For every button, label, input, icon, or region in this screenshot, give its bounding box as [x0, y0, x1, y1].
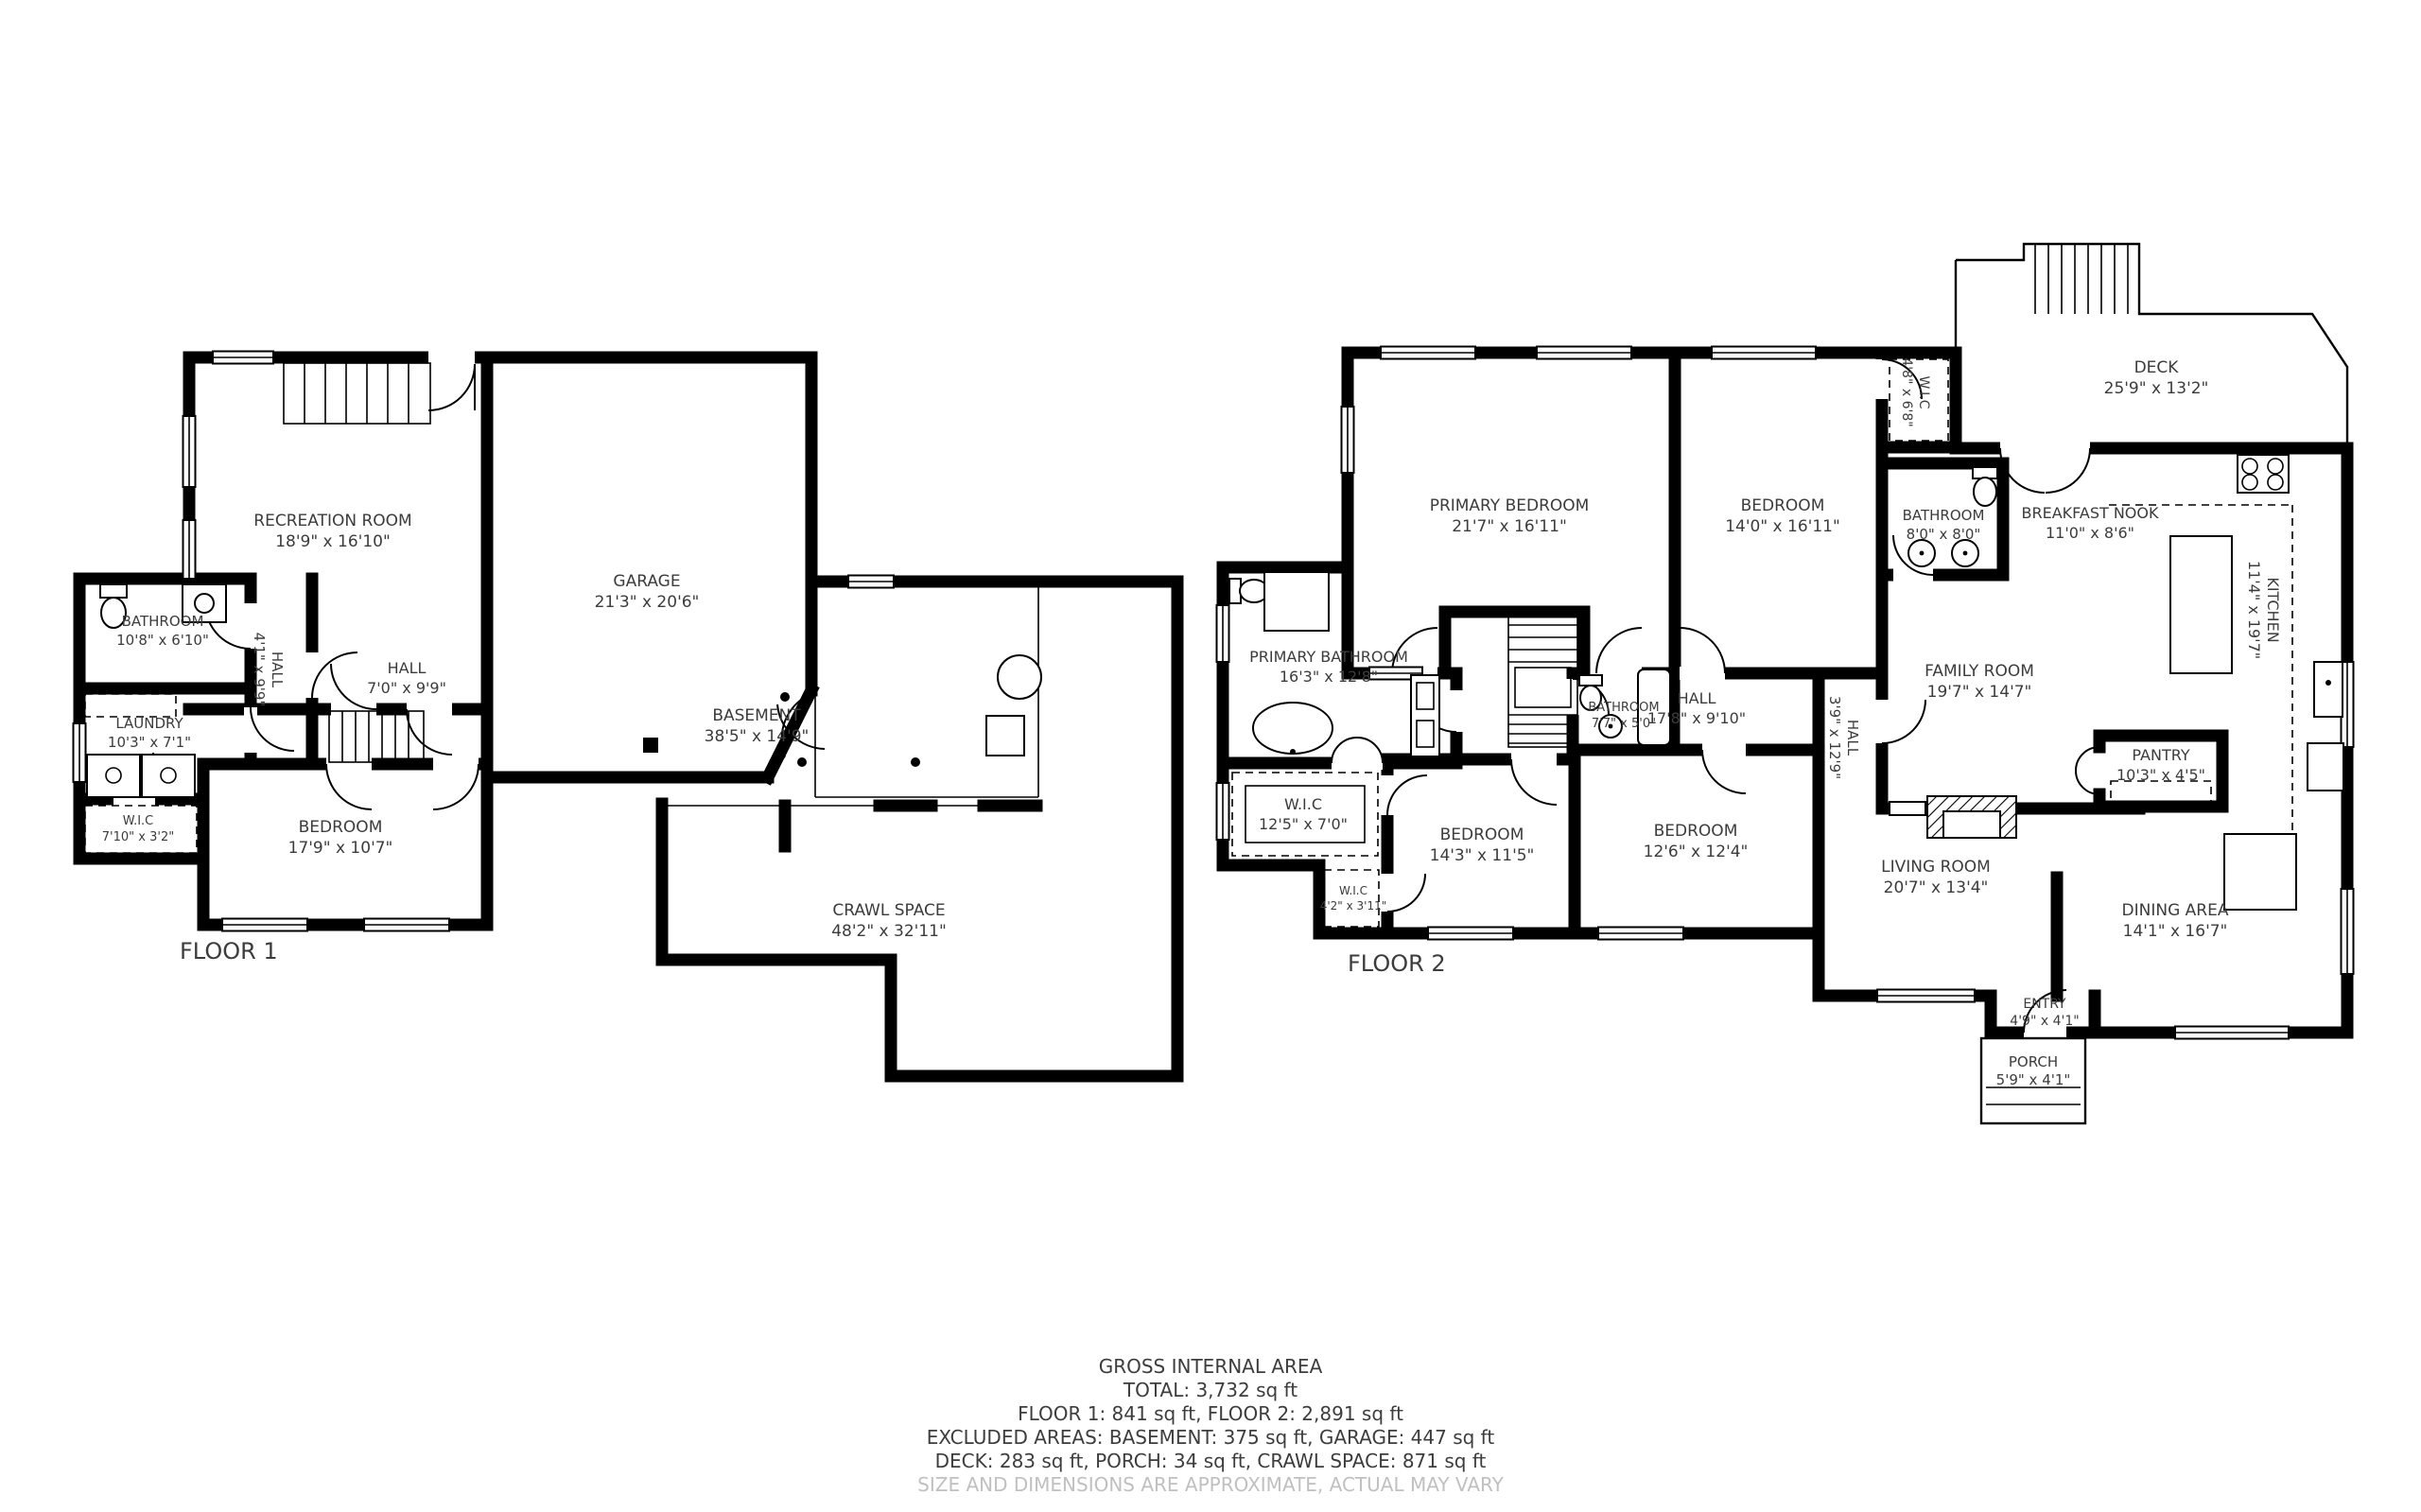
window [1877, 990, 1975, 1002]
window [1342, 407, 1354, 473]
window [1537, 347, 1631, 359]
summary-disclaimer: SIZE AND DIMENSIONS ARE APPROXIMATE, ACT… [917, 1473, 1504, 1496]
fireplace-window [1890, 802, 1925, 815]
garage-post [643, 738, 658, 753]
window [364, 919, 449, 931]
window [1217, 605, 1229, 662]
stove [2238, 455, 2289, 493]
window [222, 919, 307, 931]
floor1-title: FLOOR 1 [180, 938, 278, 965]
window [213, 352, 273, 364]
summary-title: GROSS INTERNAL AREA [1099, 1355, 1323, 1378]
window [183, 520, 196, 579]
window [2342, 889, 2354, 974]
floorplan-canvas: RECREATION ROOM18'9" x 16'10" GARAGE21'3… [0, 0, 2421, 1512]
window [848, 576, 894, 588]
vanity [1411, 675, 1439, 756]
summary-excluded: EXCLUDED AREAS: BASEMENT: 375 sq ft, GAR… [927, 1426, 1495, 1449]
kitchen-sink [2314, 662, 2343, 717]
window [1598, 928, 1683, 940]
background [0, 0, 2421, 1512]
summary-floors: FLOOR 1: 841 sq ft, FLOOR 2: 2,891 sq ft [1018, 1402, 1403, 1425]
window [1381, 347, 1475, 359]
summary-total: TOTAL: 3,732 sq ft [1123, 1379, 1298, 1401]
window [74, 723, 86, 782]
summary-excluded2: DECK: 283 sq ft, PORCH: 34 sq ft, CRAWL … [935, 1450, 1487, 1472]
floorplan-page: RECREATION ROOM18'9" x 16'10" GARAGE21'3… [0, 0, 2421, 1512]
window [2175, 1027, 2289, 1039]
water-heater [998, 655, 1041, 699]
window [183, 416, 196, 487]
washer-dryer [87, 755, 195, 797]
shower [1264, 572, 1329, 631]
toilet [1973, 467, 1997, 506]
floor2-title: FLOOR 2 [1348, 950, 1446, 977]
window [1217, 783, 1229, 840]
kitchen-cabinet [2224, 834, 2296, 910]
kitchen-island [2170, 536, 2232, 673]
window [1712, 347, 1816, 359]
furnace [986, 716, 1024, 756]
toilet [1229, 579, 1268, 603]
window [1428, 928, 1513, 940]
fireplace [1927, 796, 2016, 838]
dishwasher [2308, 743, 2343, 791]
bathtub [1253, 703, 1332, 754]
